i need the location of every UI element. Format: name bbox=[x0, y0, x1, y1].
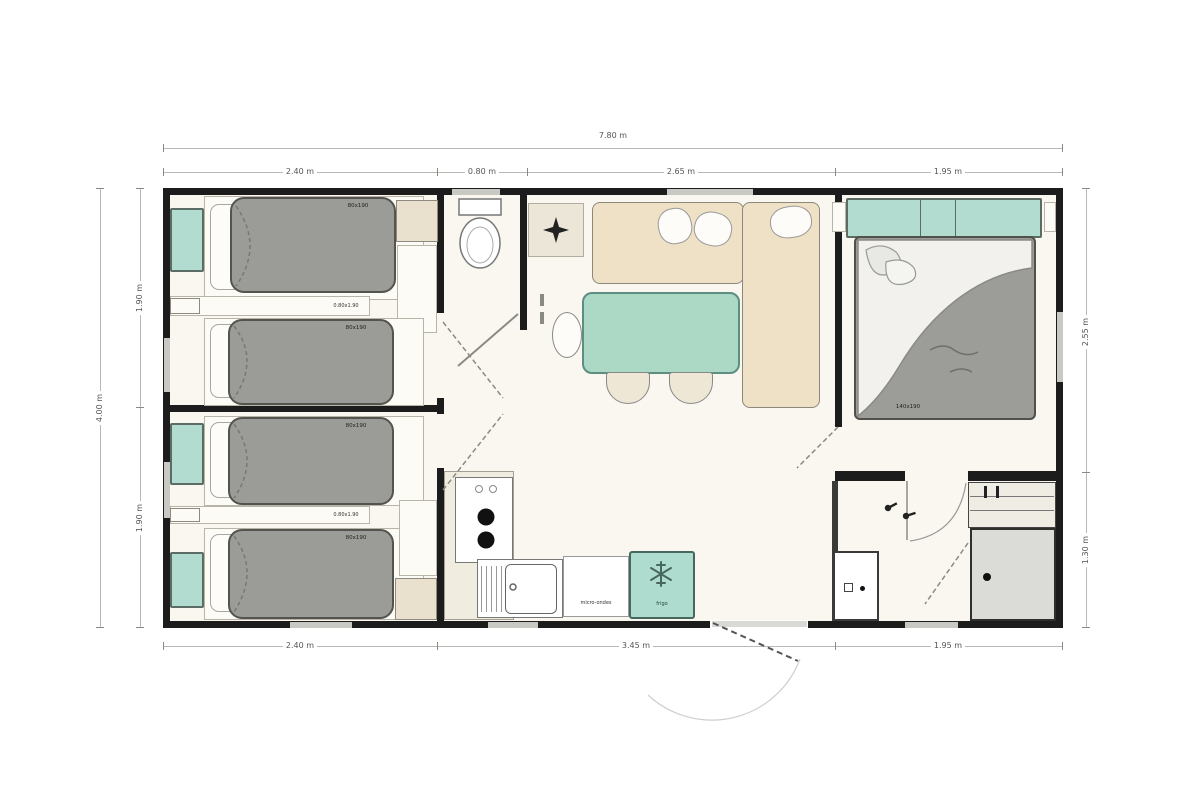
nightstand bbox=[170, 423, 204, 485]
dim-label: 3.45 m bbox=[619, 641, 653, 651]
single-bed-mattress bbox=[228, 529, 394, 619]
window-bathroom bbox=[905, 622, 958, 628]
wall-bathroom-top-right bbox=[968, 471, 1056, 481]
single-bed-mattress bbox=[230, 197, 396, 293]
dim-tick bbox=[136, 627, 144, 628]
wall-hall-upper bbox=[437, 195, 444, 313]
shelf-unit bbox=[399, 500, 437, 576]
bathroom-shelf bbox=[968, 482, 1056, 528]
fridge bbox=[629, 551, 695, 619]
hall-switch bbox=[540, 294, 544, 306]
dim-line-top-overall bbox=[163, 148, 1063, 149]
dim-tick bbox=[136, 188, 144, 189]
bed-size-label: 80x190 bbox=[346, 535, 367, 541]
dim-tick bbox=[437, 642, 438, 650]
dim-label: 1.95 m bbox=[931, 167, 965, 177]
bed-size-label: 80x190 bbox=[346, 325, 367, 331]
dim-tick bbox=[96, 188, 104, 189]
bed-size-label: 140x190 bbox=[896, 404, 920, 410]
fridge-label: frigo bbox=[656, 601, 667, 607]
shelf-bar bbox=[996, 486, 999, 498]
drain-icon bbox=[983, 573, 991, 581]
dim-label: 1.90 m bbox=[135, 281, 145, 315]
wall-hall-mid bbox=[437, 398, 444, 414]
dim-tick bbox=[163, 168, 164, 176]
headboard-divider bbox=[920, 200, 921, 236]
dining-table bbox=[582, 292, 740, 374]
dim-line-left-segments bbox=[140, 188, 141, 628]
dim-label: 2.65 m bbox=[664, 167, 698, 177]
wall-left bbox=[163, 188, 170, 628]
wall-bedroom-divider bbox=[170, 405, 437, 412]
counter-label: micro-ondes bbox=[580, 600, 611, 606]
single-bed-mattress bbox=[228, 319, 394, 405]
dim-label: 1.30 m bbox=[1081, 533, 1091, 567]
window-wc bbox=[452, 189, 500, 195]
entry-door-slab bbox=[712, 621, 807, 627]
dim-tick bbox=[835, 642, 836, 650]
dim-tick bbox=[163, 144, 164, 152]
wall-bathroom-top-left bbox=[835, 471, 905, 481]
dim-label-top-overall: 7.80 m bbox=[596, 131, 630, 141]
single-bed-mattress bbox=[228, 417, 394, 505]
hall-light-pad bbox=[528, 203, 584, 257]
nightstand bbox=[170, 208, 204, 272]
dim-tick bbox=[1082, 627, 1090, 628]
dim-tick bbox=[1082, 472, 1090, 473]
window-kitchen bbox=[488, 622, 538, 628]
window-dining bbox=[667, 189, 753, 195]
bed-size-label: 80x190 bbox=[348, 203, 369, 209]
shelf-size-label: 0.80x1.90 bbox=[333, 303, 358, 309]
floor-plan-canvas: 7.80 m 2.40 m 0.80 m 2.65 m 1.95 m 2.40 … bbox=[0, 0, 1200, 800]
window-master bbox=[1057, 312, 1063, 382]
wall-wc-right bbox=[520, 195, 527, 330]
chair bbox=[552, 312, 582, 358]
dim-label: 1.90 m bbox=[135, 501, 145, 535]
headboard-divider bbox=[955, 200, 956, 236]
window-bedroom2-south bbox=[290, 622, 352, 628]
double-bed-mattress bbox=[854, 236, 1036, 420]
bed-size-label: 80x190 bbox=[346, 423, 367, 429]
dim-tick bbox=[96, 627, 104, 628]
dim-tick bbox=[1062, 144, 1063, 152]
wall-top bbox=[163, 188, 1063, 195]
dim-label: 2.55 m bbox=[1081, 315, 1091, 349]
sink-drainer bbox=[481, 566, 503, 612]
dim-tick bbox=[835, 168, 836, 176]
wardrobe bbox=[396, 200, 438, 242]
water-heater-cabinet bbox=[833, 551, 879, 621]
hob-unit bbox=[455, 477, 513, 563]
dim-tick bbox=[136, 407, 144, 408]
side-table bbox=[832, 202, 846, 232]
dim-label: 2.40 m bbox=[283, 641, 317, 651]
nightstand bbox=[170, 552, 204, 608]
dim-tick bbox=[437, 168, 438, 176]
shelf-line bbox=[970, 496, 1054, 497]
entry-door-swing-arc bbox=[648, 659, 800, 720]
cabinet-dot bbox=[860, 586, 865, 591]
dim-tick bbox=[1062, 168, 1063, 176]
dim-tick bbox=[1082, 188, 1090, 189]
cabinet-mark bbox=[844, 583, 853, 592]
side-table bbox=[1044, 202, 1056, 232]
dim-label: 0.80 m bbox=[465, 167, 499, 177]
shelf-line bbox=[970, 510, 1054, 511]
shelf-size-label: 0.80x1.90 bbox=[333, 512, 358, 518]
sink-bowl bbox=[505, 564, 557, 614]
window-bedroom1 bbox=[164, 338, 170, 392]
wall-hall-lower bbox=[437, 468, 444, 621]
headboard-shelf bbox=[846, 198, 1042, 238]
dim-tick bbox=[527, 168, 528, 176]
shelf-box bbox=[170, 298, 200, 314]
dim-label: 2.40 m bbox=[283, 167, 317, 177]
dim-tick bbox=[1062, 642, 1063, 650]
shelf-box bbox=[170, 508, 200, 522]
hall-switch bbox=[540, 312, 544, 324]
dim-tick bbox=[163, 642, 164, 650]
dim-label-left-overall: 4.00 m bbox=[95, 391, 105, 425]
wardrobe bbox=[395, 578, 437, 620]
kitchen-counter-right bbox=[563, 556, 629, 617]
wall-right bbox=[1056, 188, 1063, 628]
shelf-bar bbox=[984, 486, 987, 498]
dim-label: 1.95 m bbox=[931, 641, 965, 651]
